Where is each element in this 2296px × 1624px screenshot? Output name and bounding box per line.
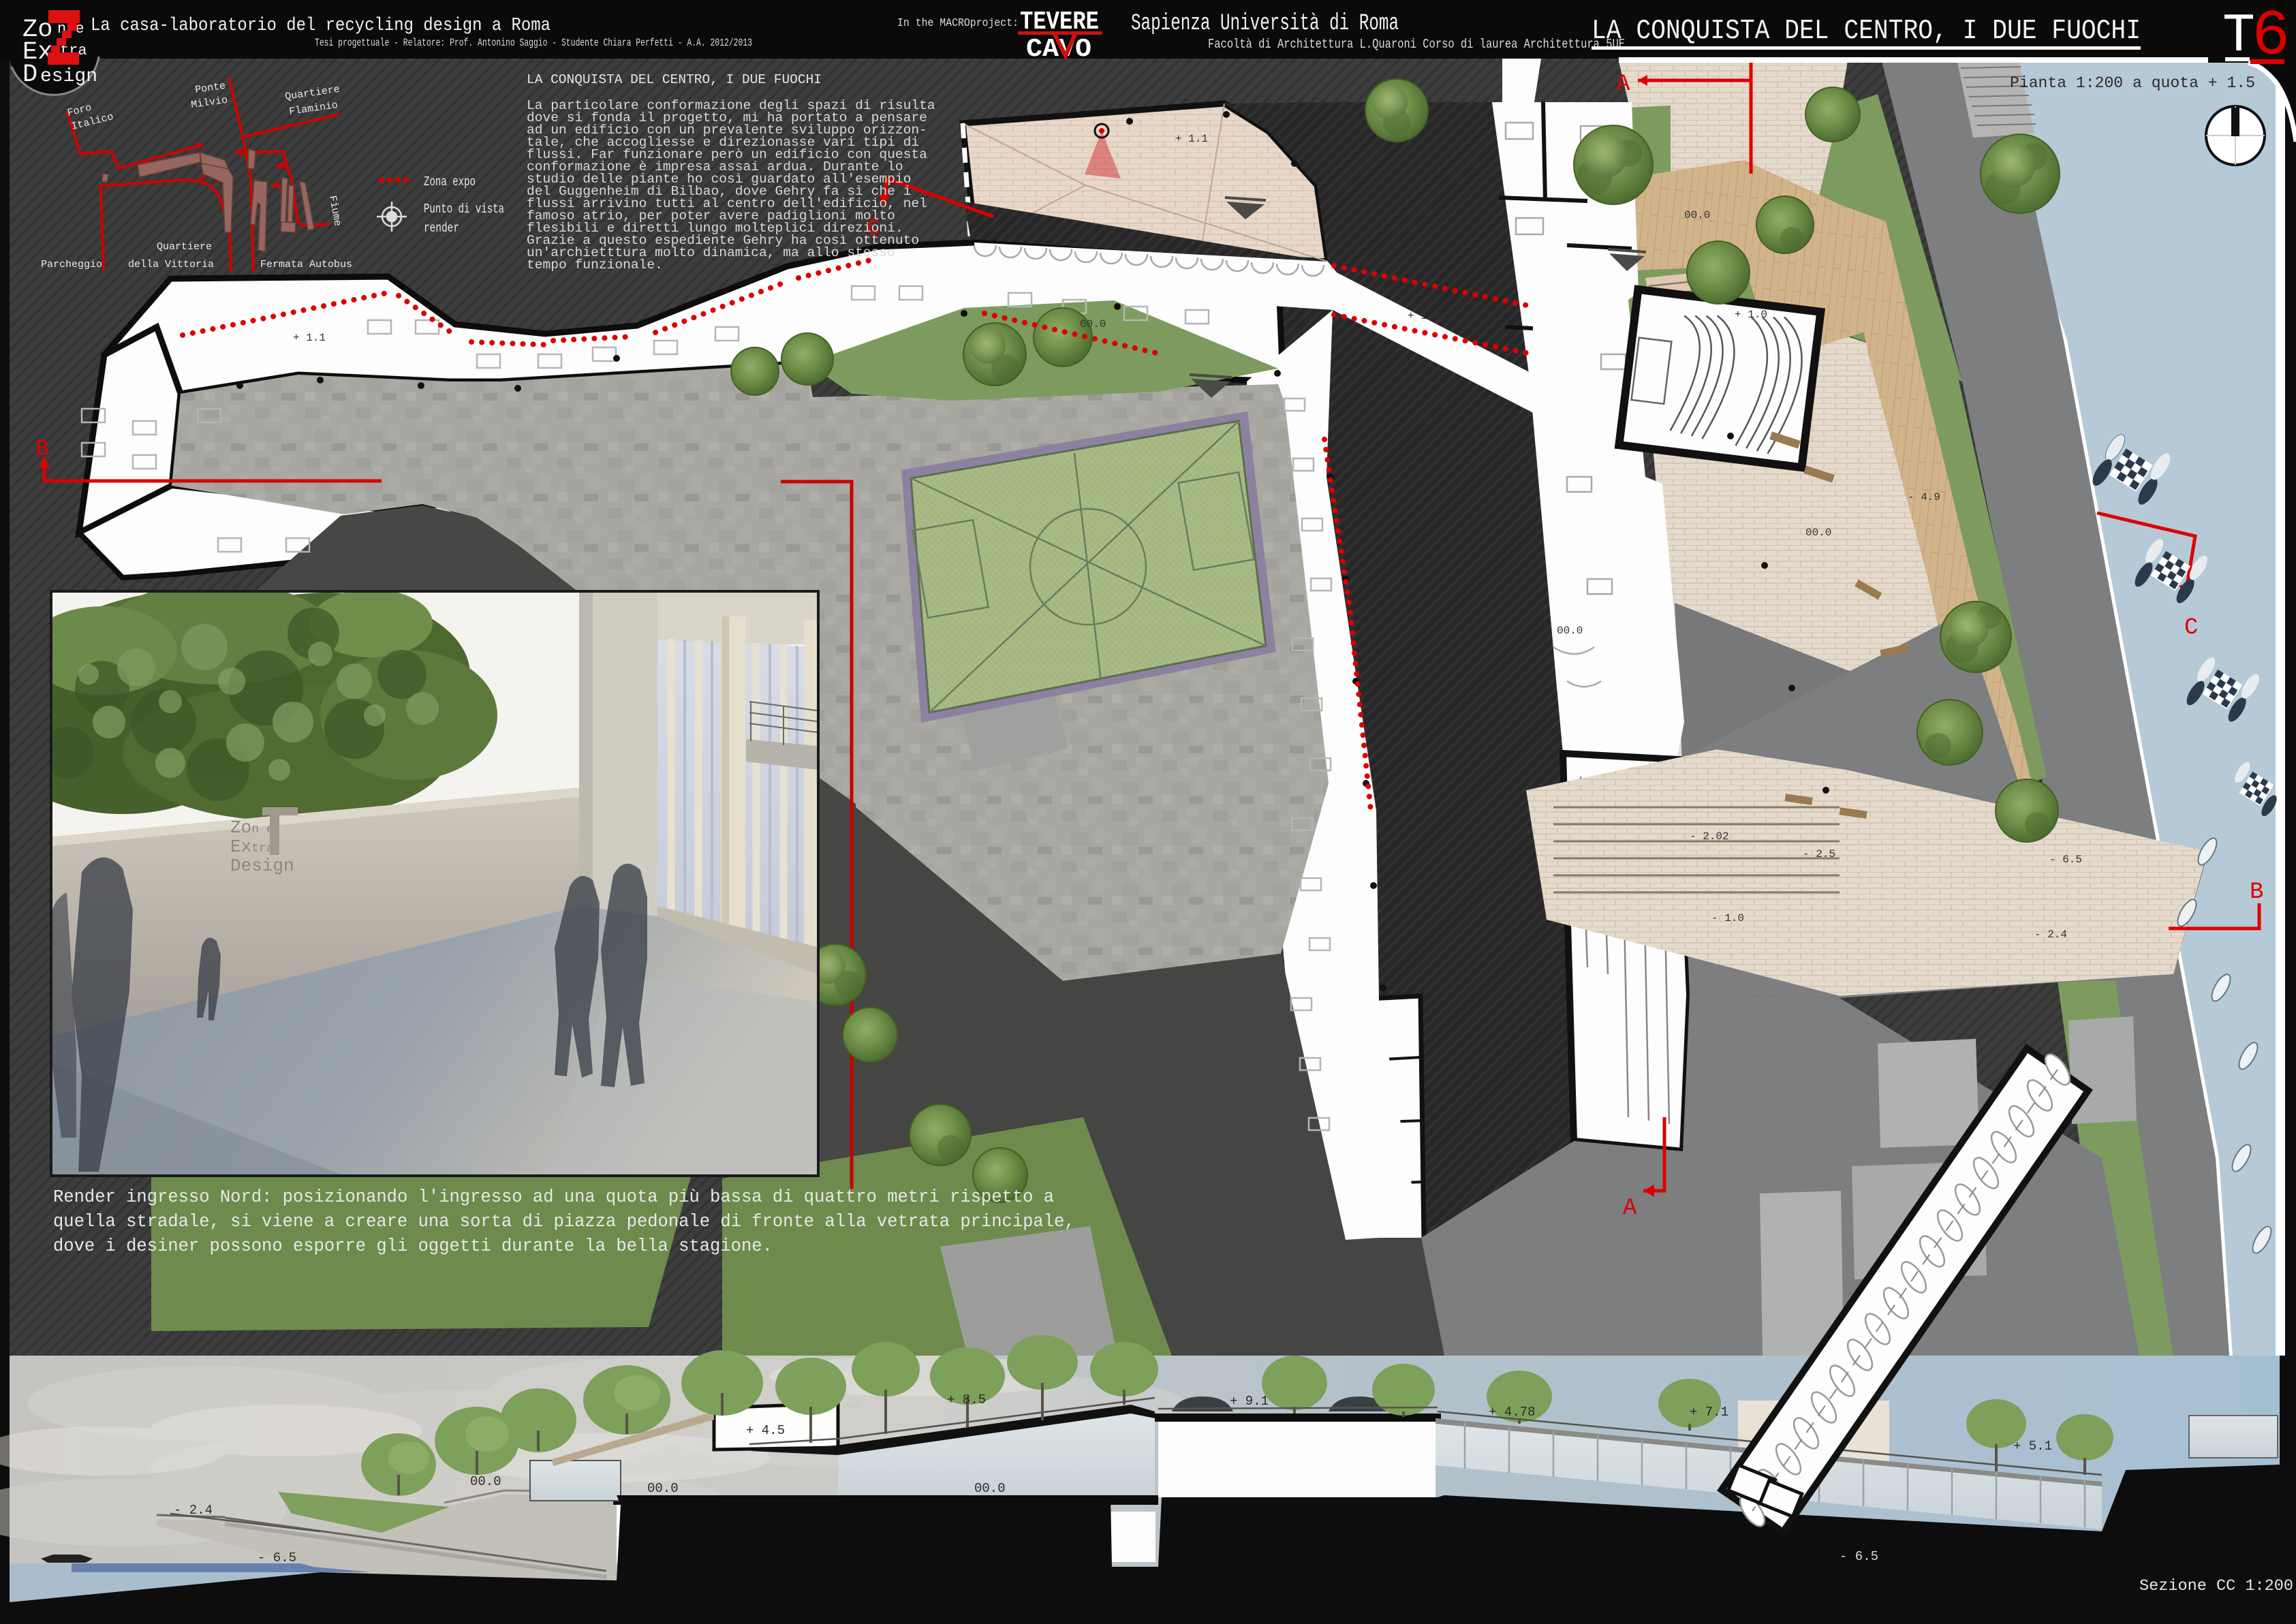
svg-text:- 2.4: - 2.4 [174,1503,213,1518]
svg-text:Sapienza Università di Roma: Sapienza Università di Roma [1131,11,1399,37]
svg-text:- 2.02: - 2.02 [1690,830,1729,843]
svg-text:esign: esign [40,66,97,87]
svg-text:00.0: 00.0 [974,1481,1006,1496]
svg-text:Punto di vista: Punto di vista [424,202,504,217]
svg-text:Quartiere: Quartiere [157,241,212,253]
svg-text:della Vittoria: della Vittoria [128,259,214,270]
svg-text:A: A [1616,72,1630,97]
svg-text:B: B [35,437,49,463]
svg-text:Parcheggio: Parcheggio [41,259,102,270]
svg-text:+ 9.1: + 9.1 [1230,1394,1269,1409]
svg-text:+ 4.78: + 4.78 [1489,1405,1535,1420]
svg-text:- 2.4: - 2.4 [2034,928,2067,941]
svg-text:dove i desiner possono esporre: dove i desiner possono esporre gli ogget… [53,1236,773,1256]
svg-text:00.0: 00.0 [1557,625,1583,637]
svg-text:LA CONQUISTA DEL CENTRO, I DUE: LA CONQUISTA DEL CENTRO, I DUE FUOCHI [1592,16,2141,47]
svg-text:Render ingresso Nord: posizion: Render ingresso Nord: posizionando l'ing… [53,1187,1054,1207]
svg-text:LA CONQUISTA DEL CENTRO, I DUE: LA CONQUISTA DEL CENTRO, I DUE FUOCHI [527,72,822,87]
svg-text:+ 1.0: + 1.0 [1735,309,1767,321]
svg-text:- 2.5: - 2.5 [1803,848,1835,860]
svg-text:- 1.0: - 1.0 [1711,912,1744,924]
svg-text:Design: Design [230,856,294,876]
svg-text:In the MACROproject:: In the MACROproject: [897,17,1019,30]
svg-text:- 4.9: - 4.9 [1908,491,1940,503]
svg-text:tempo funzionale.: tempo funzionale. [527,257,663,272]
svg-text:+ 1.1: + 1.1 [1175,133,1208,145]
svg-text:Pianta 1:200 a quota + 1.5: Pianta 1:200 a quota + 1.5 [2010,74,2255,92]
svg-text:- 6.5: - 6.5 [258,1550,296,1565]
svg-text:00.0: 00.0 [1805,527,1831,539]
svg-text:Fermata Autobus: Fermata Autobus [260,259,352,270]
svg-text:Sezione CC 1:200: Sezione CC 1:200 [2139,1577,2293,1595]
svg-text:- 6.5: - 6.5 [1840,1549,1878,1564]
svg-text:D: D [22,61,37,89]
svg-text:00.0: 00.0 [1080,318,1106,330]
svg-text:+ 4.5: + 4.5 [746,1423,785,1438]
svg-text:- 6.5: - 6.5 [2049,854,2082,866]
svg-text:La casa-laboratorio del recycl: La casa-laboratorio del recycling design… [91,16,550,36]
svg-text:+ 7.1: + 7.1 [1690,1405,1728,1420]
svg-text:+ 1.1: + 1.1 [1408,310,1440,322]
svg-text:A: A [1623,1196,1637,1221]
svg-text:B: B [2250,879,2263,905]
svg-text:Zona expo: Zona expo [424,174,476,189]
svg-text:+ 8.5: + 8.5 [947,1392,986,1407]
svg-text:00.0: 00.0 [1684,209,1710,221]
svg-text:render: render [424,221,459,236]
svg-text:00.0: 00.0 [470,1474,501,1489]
svg-text:+ 1.1: + 1.1 [293,332,326,344]
svg-text:Tesi progettuale - Relatore: P: Tesi progettuale - Relatore: Prof. Anton… [315,37,752,49]
svg-text:quella stradale, si viene a cr: quella stradale, si viene a creare una s… [53,1212,1075,1232]
svg-text:Facoltà di Architettura L.Quar: Facoltà di Architettura L.Quaroni Corso … [1208,37,1625,52]
svg-text:00.0: 00.0 [647,1481,679,1496]
svg-text:C: C [2184,615,2198,641]
svg-text:+ 5.1: + 5.1 [2013,1439,2052,1454]
